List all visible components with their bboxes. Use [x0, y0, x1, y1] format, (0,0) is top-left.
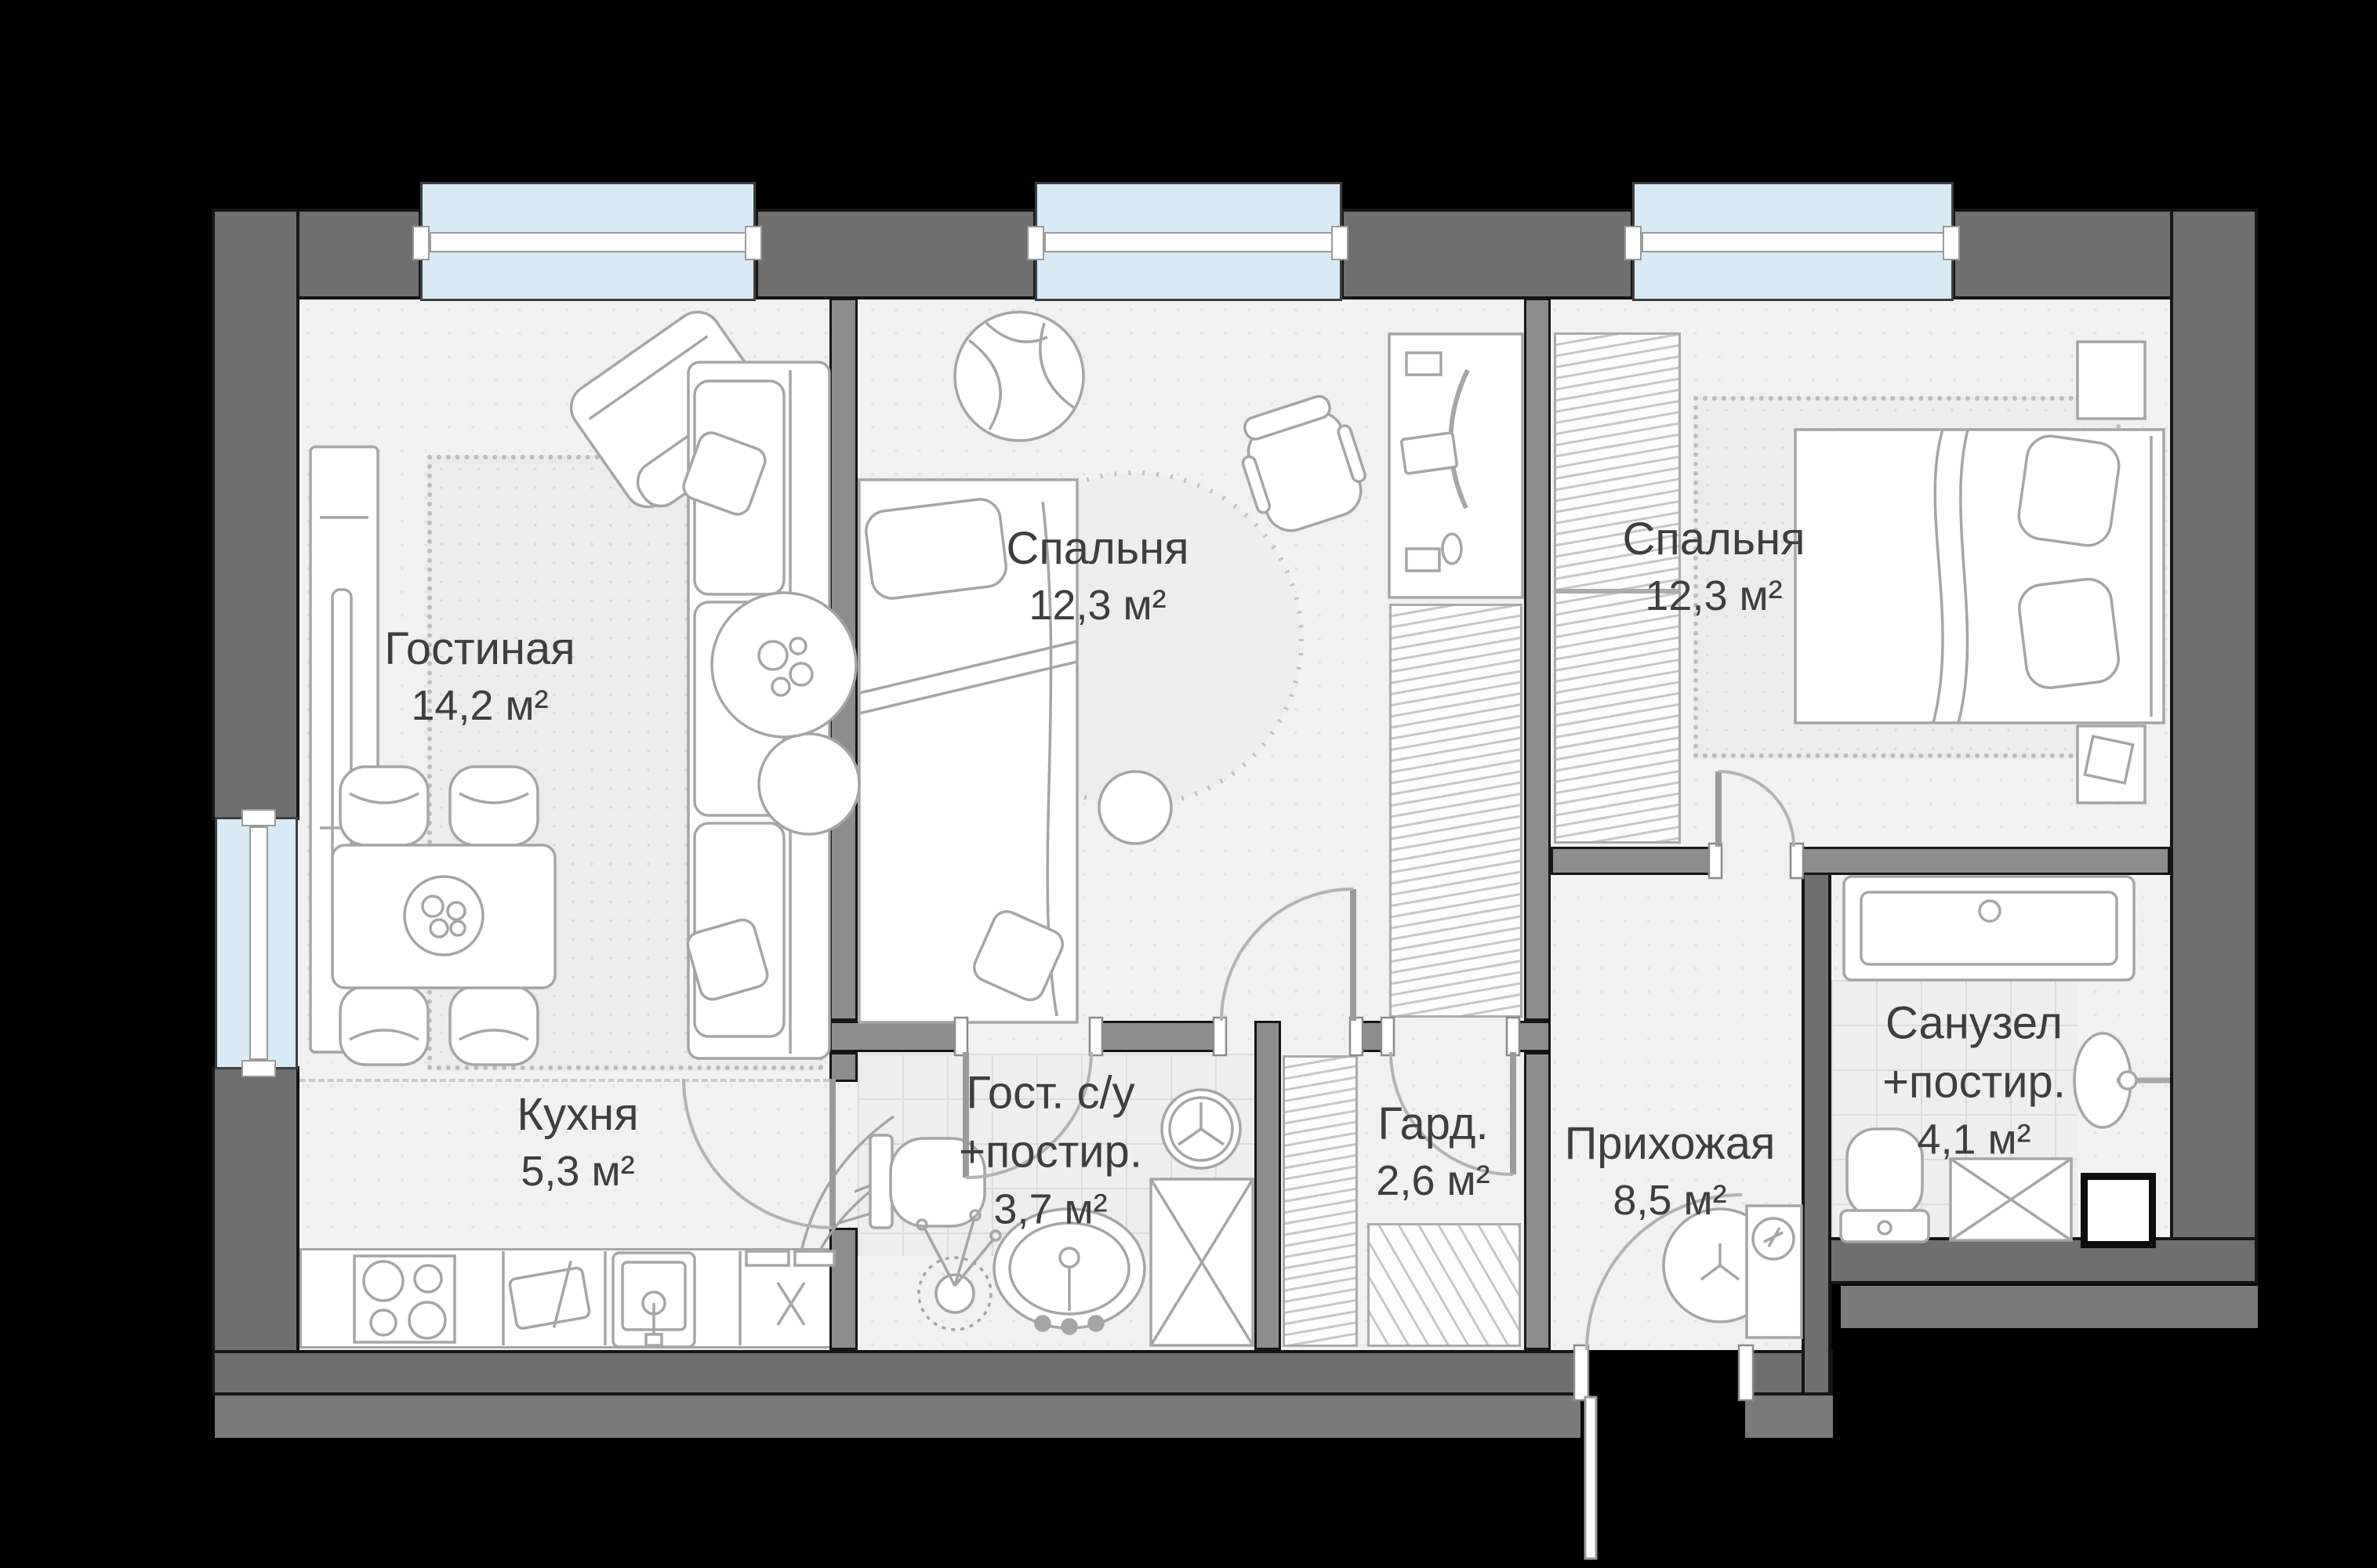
room-label-kitchen: Кухня 5,3 м² [517, 1085, 638, 1200]
dining-set [332, 767, 555, 1065]
room-area: 12,3 м² [1622, 569, 1805, 624]
room-name: Гост. с/у [959, 1064, 1142, 1123]
room-name: Спальня [1622, 510, 1805, 568]
washing-machine-guest [1151, 1179, 1253, 1345]
room-area: 3,7 м² [959, 1181, 1142, 1236]
kitchen-sink [613, 1253, 695, 1347]
door-bedroom1 [1221, 889, 1353, 1021]
floor-plan: Гостиная 14,2 м² Спальня 12,3 м² Спальня… [0, 0, 2377, 1568]
washing-machine [1951, 1159, 2071, 1240]
hob [354, 1256, 455, 1342]
room-area: 4,1 м² [1882, 1112, 2066, 1167]
room-label-hallway: Прихожая 8,5 м² [1565, 1114, 1776, 1229]
room-name: Прихожая [1565, 1114, 1776, 1173]
door-bedroom2 [1718, 771, 1794, 847]
room-label-living: Гостиная 14,2 м² [384, 619, 575, 734]
room-name-2: +постир. [959, 1123, 1142, 1181]
desk [1389, 334, 1522, 597]
room-name: Спальня [1006, 519, 1188, 578]
room-name: Санузел [1882, 994, 2066, 1053]
room-name: Кухня [517, 1085, 638, 1144]
bed-double [1795, 430, 2164, 723]
vent-fan [1162, 1090, 1240, 1168]
room-area: 5,3 м² [517, 1145, 638, 1200]
room-name-2: +постир. [1882, 1053, 2066, 1112]
furniture-layer [0, 0, 2377, 1568]
pouf [1099, 771, 1171, 844]
room-label-bedroom2: Спальня 12,3 м² [1622, 510, 1805, 624]
room-area: 8,5 м² [1565, 1174, 1776, 1229]
room-area: 2,6 м² [1376, 1154, 1490, 1209]
plant [955, 312, 1083, 441]
desk-chair [1230, 390, 1375, 539]
room-label-guest-bathroom: Гост. с/у +постир. 3,7 м² [959, 1064, 1142, 1237]
room-area: 12,3 м² [1006, 579, 1188, 633]
nightstand-bottom [2078, 726, 2145, 803]
door-living [684, 1079, 833, 1228]
room-area: 14,2 м² [384, 679, 575, 734]
nightstand-top [2078, 342, 2145, 419]
bathtub [1844, 877, 2134, 980]
bath-sink [2074, 1033, 2170, 1127]
dishwasher-mark [778, 1283, 804, 1325]
room-label-wardrobe: Гард. 2,6 м² [1376, 1094, 1490, 1209]
room-name: Гард. [1376, 1094, 1490, 1153]
room-label-bedroom1: Спальня 12,3 м² [1006, 519, 1188, 633]
cutting-board [507, 1259, 590, 1334]
room-label-bathroom: Санузел +постир. 4,1 м² [1882, 994, 2066, 1167]
room-name: Гостиная [384, 619, 575, 678]
